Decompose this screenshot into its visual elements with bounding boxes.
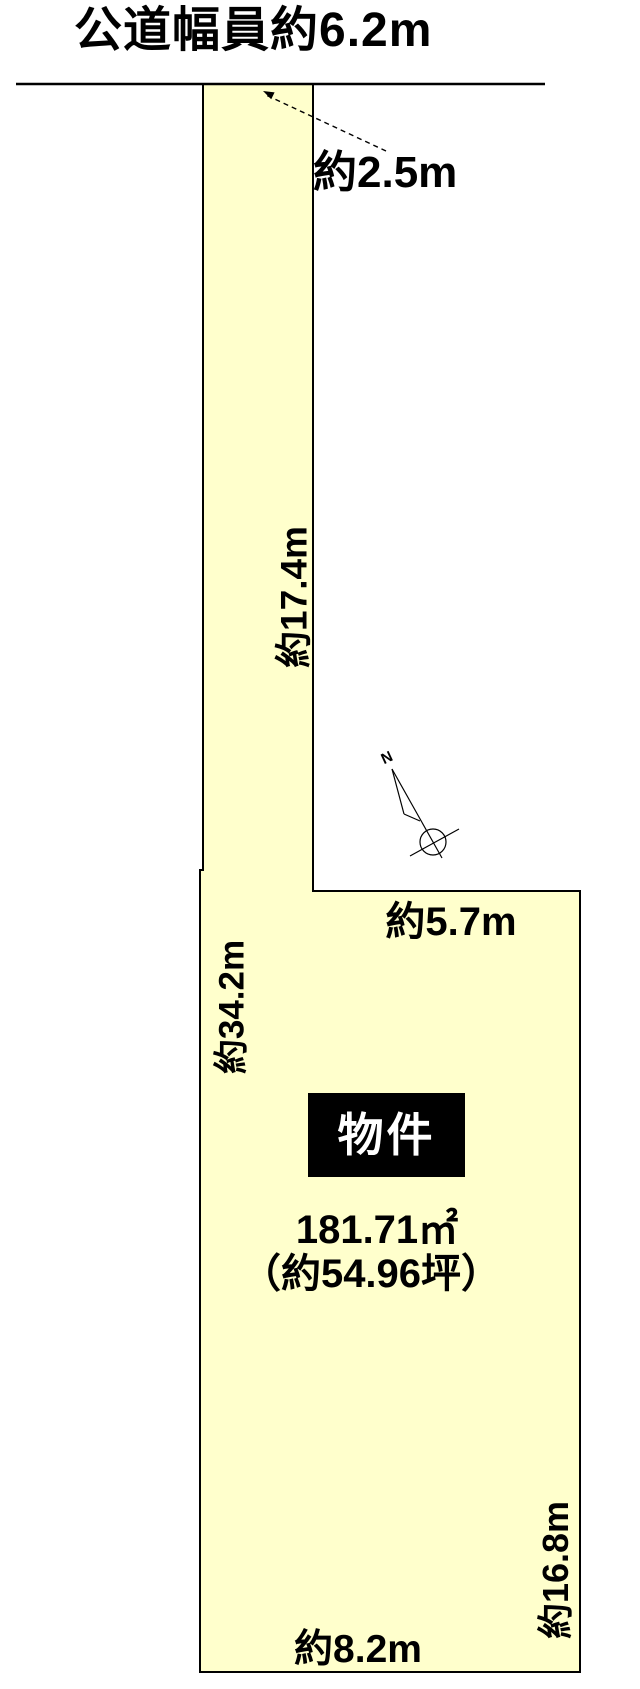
lot-plan-figure: 公道幅員約6.2m 約2.5m 約17.4m 約5.7m 約34.2m 物件 1… bbox=[0, 0, 640, 1689]
property-badge: 物件 bbox=[308, 1093, 465, 1177]
area-tsubo-label: （約54.96坪） bbox=[241, 1254, 501, 1294]
inner-top-width-label: 約5.7m bbox=[385, 902, 516, 942]
road-width-label: 公道幅員約6.2m bbox=[74, 7, 432, 55]
compass-axis-line bbox=[392, 769, 442, 858]
parcel-drawing bbox=[0, 0, 640, 1689]
compass bbox=[392, 769, 459, 858]
parcel-shape bbox=[200, 84, 580, 1672]
area-sqm-label: 181.71㎡ bbox=[296, 1210, 458, 1250]
compass-cross-line bbox=[410, 829, 459, 856]
east-depth-label: 約16.8m bbox=[538, 1501, 574, 1639]
flag-depth-label: 約17.4m bbox=[276, 526, 313, 668]
flag-width-label: 約2.5m bbox=[313, 151, 457, 195]
south-width-label: 約8.2m bbox=[294, 1630, 422, 1669]
property-badge-label: 物件 bbox=[338, 1112, 436, 1158]
west-depth-label: 約34.2m bbox=[215, 940, 250, 1074]
compass-needle-edge bbox=[392, 769, 404, 814]
